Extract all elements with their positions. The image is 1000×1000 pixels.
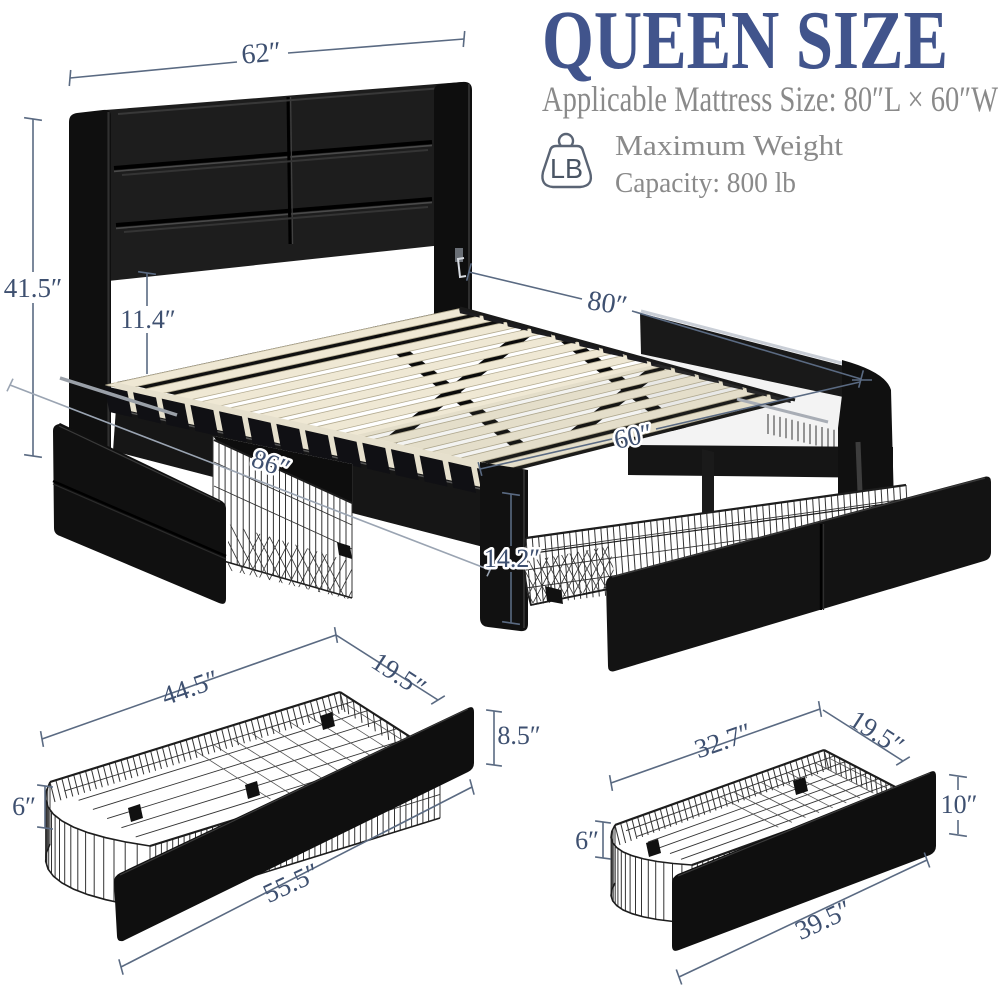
svg-text:14.2″: 14.2″ [484,544,540,573]
svg-text:LB: LB [550,153,583,184]
svg-text:80″: 80″ [585,285,629,322]
svg-text:8.5″: 8.5″ [497,721,540,750]
svg-text:Capacity: 800 lb: Capacity: 800 lb [615,167,796,199]
svg-text:10″: 10″ [941,790,978,819]
svg-text:Applicable Mattress Size: 80″L: Applicable Mattress Size: 80″L × 60″W [542,79,998,119]
svg-text:Maximum Weight: Maximum Weight [615,130,843,162]
svg-text:6″: 6″ [575,826,599,855]
svg-text:19.5″: 19.5″ [366,646,431,703]
svg-text:19.5″: 19.5″ [844,704,909,761]
svg-text:44.5″: 44.5″ [158,664,223,711]
svg-text:41.5″: 41.5″ [4,273,63,303]
svg-text:11.4″: 11.4″ [120,305,175,334]
svg-text:62″: 62″ [240,36,282,70]
svg-text:QUEEN SIZE: QUEEN SIZE [542,0,948,87]
svg-text:6″: 6″ [12,792,36,821]
svg-text:32.7″: 32.7″ [691,717,756,764]
